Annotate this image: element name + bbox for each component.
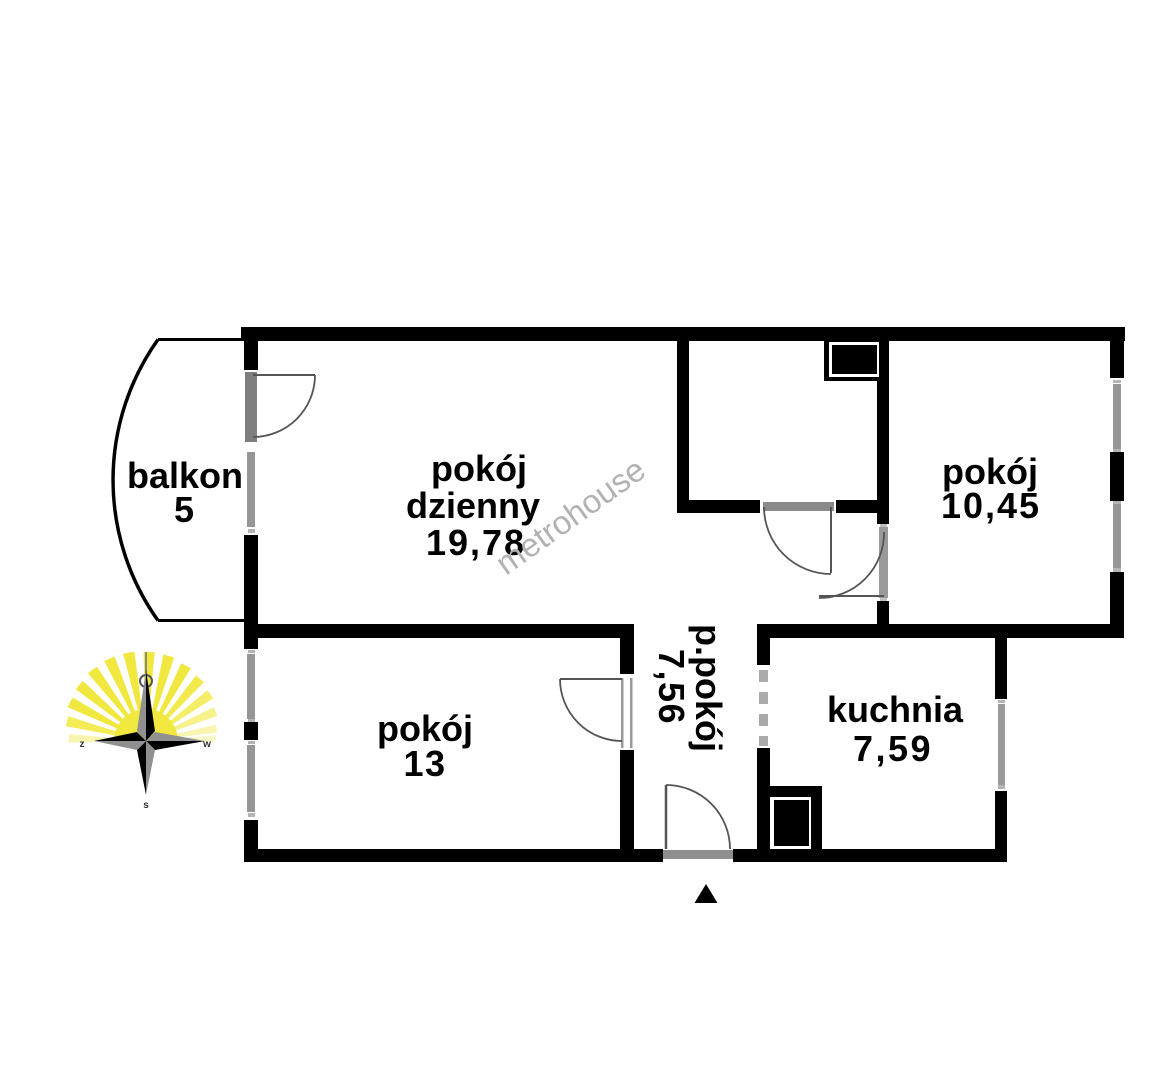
svg-text:z: z [80, 739, 85, 750]
svg-text:7,59: 7,59 [853, 728, 933, 769]
svg-text:kuchnia: kuchnia [827, 689, 964, 730]
svg-text:s: s [143, 800, 149, 811]
svg-text:7,56: 7,56 [651, 649, 692, 725]
svg-text:w: w [202, 739, 211, 750]
svg-text:dzienny: dzienny [406, 485, 540, 526]
svg-text:pokój: pokój [431, 448, 527, 489]
svg-text:5: 5 [174, 489, 194, 530]
svg-text:13: 13 [403, 743, 446, 784]
svg-text:10,45: 10,45 [941, 485, 1041, 526]
svg-text:p.pokój: p.pokój [688, 624, 729, 752]
